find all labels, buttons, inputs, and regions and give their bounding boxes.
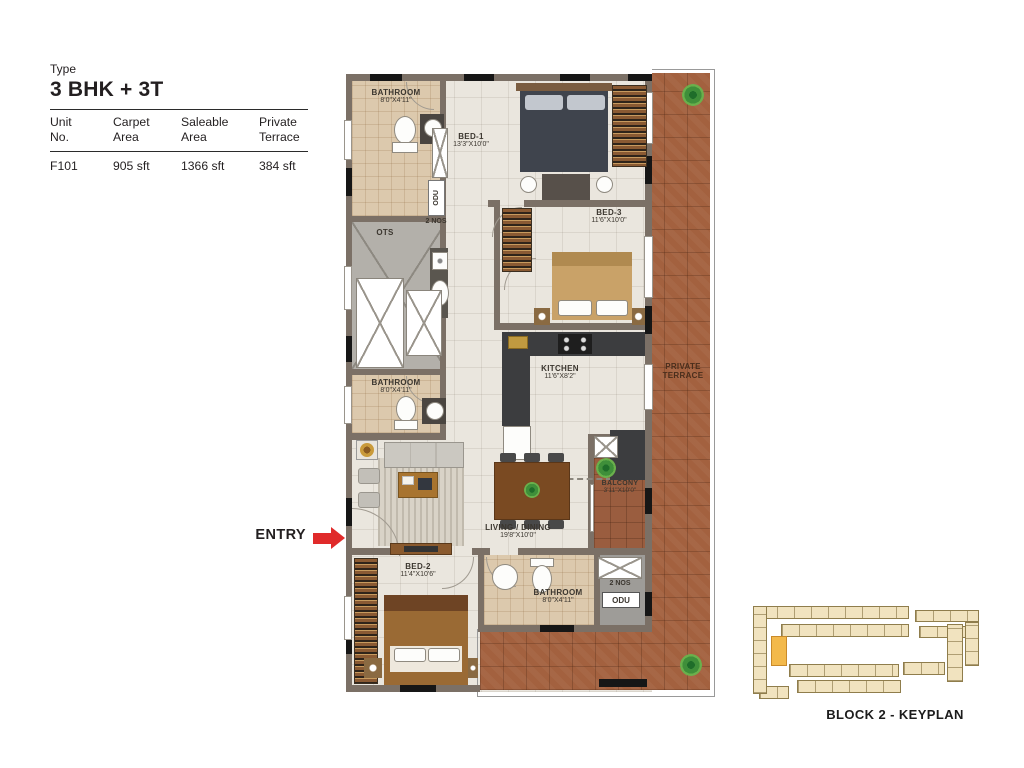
window: [344, 596, 352, 640]
wall-segment: [346, 369, 446, 375]
terrace-outer-line: [477, 696, 715, 697]
odu-top-unit-box: ODU: [428, 180, 445, 216]
papers-icon: [402, 476, 414, 485]
dining-chair-icon: [500, 453, 516, 462]
bed-canopy-icon: [384, 595, 468, 611]
window: [344, 120, 352, 160]
column-segment: [645, 488, 652, 514]
laptop-icon: [418, 478, 432, 490]
column-segment: [599, 679, 647, 687]
terrace-outer-line: [652, 69, 715, 70]
keyplan-unit-row: [797, 680, 901, 693]
odu-bottom-qty-label: 2 NOS: [602, 580, 638, 587]
odu-top-qty-label: 2 NOS: [416, 218, 456, 225]
keyplan-unit-row: [903, 662, 945, 675]
keyplan-unit-column: [753, 606, 767, 694]
keyplan-unit-row: [759, 606, 909, 619]
pillow-icon: [558, 300, 592, 316]
dining-chair-icon: [548, 453, 564, 462]
wall-segment: [478, 548, 484, 632]
unit-type-title: 3 BHK + 3T: [50, 78, 308, 102]
toilet-icon: [396, 396, 416, 422]
plant-icon: [682, 84, 704, 106]
wardrobe-icon: [612, 85, 647, 167]
cell-private-terrace: 384 sft: [259, 152, 308, 175]
toilet-icon: [394, 116, 416, 144]
plant-icon: [680, 654, 702, 676]
room-label-bathroom-bottom: BATHROOM8'0"X4'11": [520, 588, 596, 604]
armchair-icon: [358, 492, 380, 508]
column-segment: [628, 74, 652, 81]
sink-icon: [492, 564, 518, 590]
cell-unit-no: F101: [50, 152, 113, 175]
room-label-bathroom-top: BATHROOM8'0"X4'11": [358, 88, 434, 104]
armchair-icon: [358, 468, 380, 484]
floor-plan: BATHROOM8'0"X4'11" BED-113'3"X10'0" BED-…: [344, 68, 718, 700]
column-segment: [560, 74, 590, 81]
column-segment: [346, 168, 352, 196]
room-label-living-dining: LIVING / DINING19'8"X10'0": [472, 523, 564, 539]
duct-icon: [598, 557, 642, 579]
blanket-fold-icon: [552, 252, 632, 266]
column-segment: [346, 336, 352, 362]
sofa-icon: [384, 442, 464, 468]
side-table-icon: [596, 176, 613, 193]
dining-chair-icon: [524, 453, 540, 462]
column-segment: [400, 685, 436, 692]
toilet-tank-icon: [392, 142, 418, 153]
bench-icon: [542, 174, 590, 200]
hob-icon: [558, 334, 592, 354]
pillow-icon: [428, 648, 460, 662]
stair-shaft-icon: [406, 290, 442, 356]
column-segment: [370, 74, 402, 81]
type-label: Type: [50, 62, 308, 76]
odu-bottom-unit-label: ODU: [612, 596, 630, 605]
wall-segment: [346, 433, 446, 440]
room-label-ots: OTS: [360, 228, 410, 237]
column-segment: [645, 592, 652, 616]
plant-icon: [596, 458, 616, 478]
terrace-outer-line: [714, 69, 715, 697]
wall-segment: [500, 323, 652, 330]
sink-icon: [426, 402, 444, 420]
pillow-icon: [394, 648, 426, 662]
col-header-unit-no: Unit No.: [50, 110, 113, 151]
entry-label: ENTRY: [246, 527, 306, 543]
column-segment: [540, 625, 574, 632]
keyplan-unit-row: [915, 610, 979, 622]
column-segment: [645, 306, 652, 334]
cell-saleable-area: 1366 sft: [181, 152, 259, 175]
bed-headboard-icon: [516, 83, 612, 91]
entry-arrow-icon: [313, 533, 331, 544]
column-segment: [464, 74, 494, 81]
tv-icon: [404, 546, 438, 552]
lift-shaft-icon: [356, 278, 404, 368]
pillow-icon: [596, 300, 628, 316]
window: [644, 364, 653, 410]
room-label-kitchen: KITCHEN11'6"X8'2": [524, 364, 596, 380]
room-label-balcony: BALCONY3'11"X10'0": [594, 480, 646, 494]
room-label-bathroom-mid: BATHROOM8'0"X4'11": [358, 378, 434, 394]
block-keyplan: [753, 600, 989, 704]
room-label-bed1: BED-113'3"X10'0": [438, 132, 504, 148]
keyplan-unit-column: [965, 622, 979, 666]
odu-top-unit-label: ODU: [433, 190, 440, 206]
plant-icon: [524, 482, 540, 498]
window: [344, 386, 352, 424]
window: [644, 236, 653, 298]
pillow-icon: [567, 95, 605, 110]
nightstand-icon: [364, 658, 382, 678]
col-header-saleable-area: Saleable Area: [181, 110, 259, 151]
wall-segment: [524, 200, 652, 207]
page: Type 3 BHK + 3T Unit No. Carpet Area Sal…: [0, 0, 1024, 768]
col-header-carpet-area: Carpet Area: [113, 110, 181, 151]
keyplan-unit-column: [947, 624, 963, 682]
room-label-bed2: BED-211'4"X10'6": [382, 562, 454, 578]
toilet-tank-icon: [394, 420, 418, 430]
washing-machine-icon: [432, 252, 448, 270]
unit-info-panel: Type 3 BHK + 3T Unit No. Carpet Area Sal…: [50, 62, 308, 175]
cell-carpet-area: 905 sft: [113, 152, 181, 175]
keyplan-caption: BLOCK 2 - KEYPLAN: [790, 707, 1000, 722]
wall-segment: [518, 548, 652, 555]
side-table-icon: [520, 176, 537, 193]
table-row: F101 905 sft 1366 sft 384 sft: [50, 152, 308, 175]
keyplan-unit-row: [781, 624, 909, 637]
entry-arrow-icon: [331, 527, 345, 549]
window: [344, 266, 352, 310]
odu-bottom-unit-box: ODU: [602, 592, 640, 608]
nightstand-icon: [632, 308, 645, 325]
nightstand-icon: [534, 308, 550, 325]
nightstand-icon: [468, 658, 478, 678]
duct-icon: [594, 436, 618, 458]
table-header-row: Unit No. Carpet Area Saleable Area Priva…: [50, 110, 308, 151]
keyplan-unit-row: [789, 664, 899, 677]
col-header-private-terrace: Private Terrace: [259, 110, 308, 151]
bowl-icon: [360, 443, 374, 457]
room-label-bed3: BED-311'6"X10'0": [570, 208, 648, 224]
keyplan-highlighted-unit: [771, 636, 787, 666]
kitchen-sink-icon: [508, 336, 528, 349]
pillow-icon: [525, 95, 563, 110]
room-label-private-terrace: PRIVATE TERRACE: [656, 362, 710, 380]
wardrobe-icon: [502, 208, 532, 272]
